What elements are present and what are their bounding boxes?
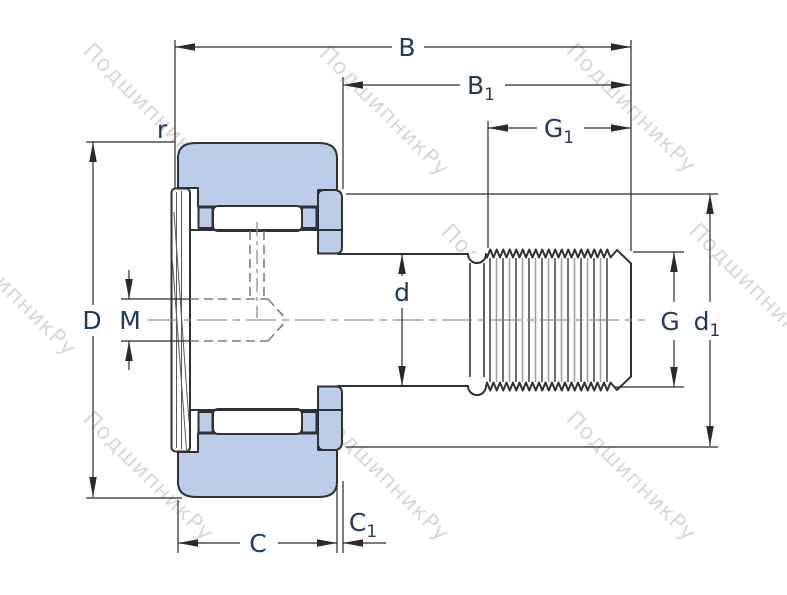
bearing-drawing: ПодшипникРу ПодшипникРу ПодшипникРу Подш…	[0, 0, 787, 595]
dim-label-C1: C1	[349, 508, 377, 542]
watermark: ПодшипникРу	[684, 219, 787, 359]
dim-label-d1: d1	[694, 307, 721, 341]
flange-bottom	[318, 387, 342, 451]
dim-label-d: d	[394, 278, 410, 307]
dim-label-C: C	[249, 529, 266, 558]
dim-label-r: r	[157, 115, 168, 144]
dim-label-B1: B1	[467, 71, 495, 105]
dim-label-G: G	[660, 307, 679, 336]
watermark: ПодшипникРу	[0, 222, 81, 362]
needle-roller-bottom	[213, 409, 302, 434]
bearing-diagram-page: ПодшипникРу ПодшипникРу ПодшипникРу Подш…	[0, 0, 787, 595]
dim-label-B: B	[398, 33, 415, 62]
dim-label-G1: G1	[544, 114, 574, 148]
flange-top	[318, 190, 342, 254]
dim-label-D: D	[82, 306, 101, 335]
outer-ring-bottom	[178, 434, 337, 498]
outer-ring-top	[178, 143, 337, 207]
watermark: ПодшипникРу	[561, 407, 701, 547]
dim-label-M: M	[119, 306, 141, 335]
